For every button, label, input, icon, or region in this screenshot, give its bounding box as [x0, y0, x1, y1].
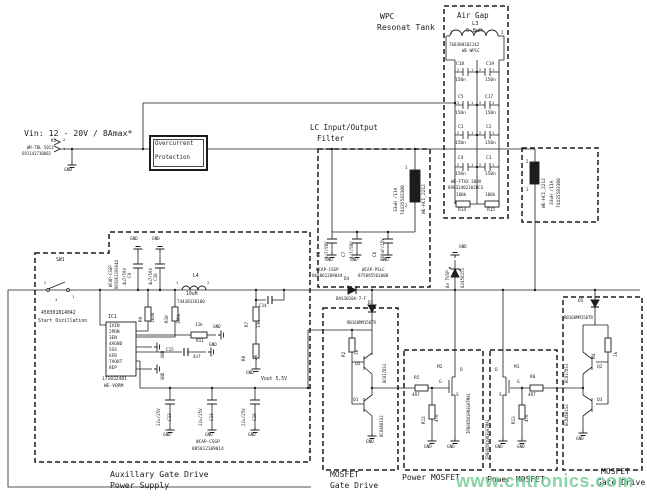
l4-pin: 2: [207, 281, 209, 285]
gnd-label: GND: [517, 446, 525, 450]
c13-value: 22u/25V: [199, 408, 203, 426]
aux-cap-series: WCAP-CSGP: [109, 265, 113, 287]
gnd-label: GND: [495, 446, 503, 450]
tvs-value: 8v TVSP: [446, 270, 450, 288]
q3-ref: Q3: [597, 399, 602, 404]
cap-pin: 2: [479, 163, 481, 167]
gnd-label: GND: [325, 259, 333, 263]
cap-pin: 2: [457, 131, 459, 135]
ind-pin: 2: [526, 160, 528, 164]
c18-value: 150n: [455, 79, 466, 84]
l1-series: WE-HCI_2212: [423, 184, 428, 214]
gnd-label: GND: [459, 246, 467, 250]
c16-value: 22u/25V: [242, 408, 246, 426]
k1-pin: 1: [63, 147, 65, 151]
c17-value: 150n: [485, 112, 496, 117]
c12-ref: C12: [169, 413, 173, 421]
cap-pin: 2: [457, 163, 459, 167]
gate-drive-left-box: [323, 308, 398, 470]
gnd-label: GND: [248, 434, 256, 438]
sw1-pin: 3: [55, 298, 57, 302]
d5-ref: D5: [578, 300, 583, 305]
c15-value: 4n7: [193, 355, 201, 359]
c3-value: 150n: [485, 173, 496, 178]
r9-ref: R9: [140, 317, 144, 322]
c2-ref: C2: [486, 126, 491, 131]
r11-ref: R11: [196, 340, 204, 344]
m2-source-label: S: [456, 394, 459, 399]
gate-drive-right-box: [563, 297, 642, 470]
power-left-title: Power MOSFET: [402, 474, 460, 482]
aux-cap-part: 865061209044: [115, 260, 119, 289]
l3-part: 760308102142: [449, 43, 479, 47]
r5-ref: R5: [414, 377, 419, 382]
r9-value: 183k: [152, 313, 156, 323]
ic1-pin-3: 3EN: [109, 337, 117, 341]
section-boxes: [35, 6, 642, 470]
cap-pin: 2: [479, 68, 481, 72]
c16-ref: C16: [254, 413, 258, 421]
l3-pin: 2: [501, 31, 503, 35]
q2-part: BC817DS1: [565, 364, 569, 383]
gnd-label: GND: [576, 438, 584, 442]
components: [47, 30, 611, 419]
tank-cap-series: WE-FTXX 300V: [451, 180, 481, 184]
ind-pin: 1: [526, 188, 528, 192]
l3-ref: L3: [472, 22, 479, 28]
q1-ref: Q1: [353, 399, 358, 404]
r14-value: 100k: [456, 194, 466, 198]
vout-label: Vout 5,5V: [261, 378, 287, 383]
gnd-label: GND: [152, 238, 160, 242]
r8-value: 3k: [255, 355, 259, 360]
l2-value: 33uH /11A: [551, 181, 556, 205]
sw1-note: Start Oszillation: [38, 320, 87, 325]
l4-value: 10uH: [186, 293, 198, 298]
l3-series: WE-WPCC: [462, 49, 480, 53]
junction-dots: [71, 71, 596, 389]
wires: [8, 36, 640, 487]
cap-pin: 2: [457, 68, 459, 72]
c2-value: 150n: [485, 142, 496, 147]
lc-filter-title-1: LC Input/Output: [310, 124, 378, 132]
c1-value: 150n: [455, 142, 466, 147]
cap-pin: 1: [471, 131, 473, 135]
r7-ref: R7: [246, 322, 250, 327]
gnd-label: GND: [381, 259, 389, 263]
ic1-pin-4: 4AGND: [109, 343, 122, 347]
l2-series: WE-HCI_2212: [543, 178, 548, 208]
gnd-label: GND: [447, 446, 455, 450]
cap-pin: 1: [492, 131, 494, 135]
c3-ref: C3: [486, 157, 491, 162]
r13-value: 47k: [526, 414, 530, 422]
r6-value: 4R7: [528, 394, 536, 398]
c14-ref: C14: [259, 305, 267, 309]
sw1-pin: 1: [72, 295, 74, 299]
c15-ref: C15: [166, 349, 174, 353]
m2-gate-label: G: [439, 381, 442, 386]
m1-ref: M1: [514, 366, 519, 371]
r5-value: 4R7: [412, 394, 420, 398]
vin-title: Vin: 12 - 20V / 8Amax*: [24, 129, 132, 137]
r4-ref: R4: [593, 354, 597, 359]
gnd-label: GND: [424, 446, 432, 450]
c9-value: 4u7/50V: [123, 268, 127, 285]
c10-value: 4u7/50V: [149, 268, 153, 285]
r13-ref: R13: [513, 416, 517, 424]
filter-cap-part: 865061209044: [312, 274, 342, 278]
m2-part: IPB065N10N3GATMA1: [467, 393, 471, 434]
l3-value: 5.8μH: [466, 29, 483, 35]
d4-part: BAS3010A-7-F: [336, 297, 366, 301]
c8-value: 4u7/50V: [325, 241, 329, 259]
ic1-series: WE-VDRM: [104, 385, 123, 390]
l2-part: 74435583300: [558, 178, 563, 208]
l4-coil: [182, 286, 206, 290]
gnd-label: GND: [213, 326, 221, 330]
l3-pin: 1: [450, 31, 452, 35]
cap-pin: 1: [471, 101, 473, 105]
c12-value: 22u/25V: [157, 408, 161, 426]
q2-ref: Q2: [597, 366, 602, 371]
filter-cap-series: WCAP-CSGP: [316, 268, 339, 272]
m2-drain-label: D: [460, 369, 463, 374]
q5-part: BC817DS1: [383, 364, 387, 383]
r8-ref: R8: [243, 356, 247, 361]
gnd-label: GND: [209, 344, 217, 348]
cap-pin: 2: [479, 101, 481, 105]
ic1-pin-1: 1VIN: [109, 325, 120, 329]
r7-value: 33k: [258, 320, 262, 328]
ic1-pin-2: 2PDN: [109, 331, 120, 335]
filter-cap-part: 875095561000: [358, 274, 388, 278]
l2-inductor-body: [530, 162, 539, 184]
air-gap-title: Air Gap: [457, 12, 489, 20]
gnd-label: GND: [130, 238, 138, 242]
gnd-label: GND: [366, 441, 374, 445]
cap-pin: 1: [492, 101, 494, 105]
diode-d5: [591, 300, 599, 307]
k1-part: 691141710002: [22, 152, 51, 156]
gnd-label: GND: [161, 351, 165, 358]
aux-cap-series: WCAP-CSGP: [196, 441, 220, 445]
r11-value: 11k: [195, 324, 203, 328]
k1-series: WR-TBL 5013: [27, 146, 54, 150]
d4-ref: D4: [344, 278, 349, 282]
m2-ref: M2: [437, 366, 442, 371]
r6-ref: R6: [530, 376, 535, 381]
q5-ref: Q5: [355, 363, 360, 368]
c4-value: 150n: [455, 173, 466, 178]
ground-symbols: [68, 162, 588, 444]
lc-filter-title-2: Filter: [317, 135, 344, 143]
r4-value: 1k: [615, 352, 619, 357]
resistor-bodies: [145, 201, 611, 419]
tank-cap-part: 890324023028CS: [448, 186, 483, 190]
l4-ref: L4: [193, 275, 199, 280]
power-mosfet-left-box: [404, 350, 483, 470]
l1-value: 33uH /11A: [395, 188, 400, 212]
cap-pin: 1: [471, 68, 473, 72]
c7-value: 4u7/50V: [350, 241, 354, 259]
junction-mark: +: [308, 450, 312, 456]
ic1-ref: IC1: [108, 316, 117, 321]
m1-source-label: S: [499, 394, 502, 399]
aux-supply-box: [35, 232, 310, 462]
r14-ref: R14: [458, 209, 466, 214]
overcurrent-title-2: Protection: [155, 156, 190, 162]
gnd-label: GND: [163, 434, 171, 438]
cap-pin: 1: [492, 163, 494, 167]
m1-part: IPB065N10N3GATMA1: [486, 419, 490, 460]
gnd-label: GND: [350, 259, 358, 263]
r10-value: 100k: [178, 314, 182, 324]
cap-pin: 1: [471, 163, 473, 167]
ind-pin: 1: [405, 166, 407, 170]
cap-pin: 1: [492, 68, 494, 72]
r15-value: 100k: [485, 194, 495, 198]
r15-ref: R15: [487, 209, 495, 214]
aux-cap-part: 885012109014: [192, 448, 224, 452]
wpc-tank-title-1: WPC: [380, 13, 394, 21]
gnd-label: GND: [64, 169, 72, 174]
k1-pin: 2: [63, 138, 65, 142]
r12-value: 47k: [436, 414, 440, 422]
d1-ref: D1: [368, 302, 373, 307]
overcurrent-title-1: Overcurrent: [155, 142, 193, 148]
cap-pin: 2: [457, 101, 459, 105]
m1-drain-label: D: [495, 369, 498, 374]
aux-section-title-1: Auxillary Gate Drive: [110, 470, 209, 478]
tvs-part: 82450151: [461, 268, 465, 288]
q3-part: BC846B1S2: [565, 404, 569, 426]
c7-ref: C7: [343, 252, 348, 257]
gate-left-title-2: Gate Drive: [330, 482, 378, 490]
d1-part: RB168MM150TR: [347, 321, 376, 325]
gnd-label: GND: [246, 372, 254, 376]
aux-section-title-2: Power Supply: [110, 481, 169, 489]
k1-ref: K1: [51, 140, 56, 144]
schematic-page: WPCResonat TankAir GapL35.8μH12760308102…: [0, 0, 647, 499]
ic1-pin-5: 5SS: [109, 349, 117, 353]
gnd-label: GND: [161, 373, 165, 380]
r2-ref: R2: [343, 352, 347, 357]
watermark: www.cntronics.com: [456, 471, 634, 492]
power-mosfet-right-box: [490, 350, 557, 470]
ic1-part: 171032401: [102, 378, 127, 383]
c13-ref: C13: [211, 413, 215, 421]
m1-gate-label: G: [517, 381, 520, 386]
l4-part: 74438336100: [177, 300, 205, 304]
c9-ref: C9: [129, 273, 133, 278]
c5-value: 150n: [455, 112, 466, 117]
c6-ref: C6: [374, 252, 379, 257]
wpc-tank-title-2: Resonat Tank: [377, 24, 435, 32]
sw1-ref: SW1: [56, 259, 65, 264]
l1-part: 74435583300: [402, 185, 407, 215]
ic1-pin-6: 6FB: [109, 355, 117, 359]
c19-value: 150n: [485, 79, 496, 84]
r12-ref: R12: [423, 416, 427, 424]
d5-part: RB168MM150TR: [564, 316, 593, 320]
r10-ref: R10: [166, 315, 170, 323]
ic1-pin-7: 7VOUT: [109, 361, 122, 365]
c4-ref: C4: [458, 157, 463, 162]
q1-part: BC846B1S2: [380, 415, 384, 437]
sw1-pin: 2: [44, 281, 46, 285]
l4-pin: 1: [176, 281, 178, 285]
gate-left-title-1: MOSFET: [330, 471, 359, 479]
r2-value: 1k: [356, 350, 360, 355]
ic1-pin-8: 8EP: [109, 367, 117, 371]
sw1-part: 450301014042: [41, 312, 76, 317]
gnd-label: GND: [205, 434, 213, 438]
l1-inductor-body: [410, 170, 420, 202]
c10-ref: C10: [155, 273, 159, 281]
filter-cap-series: WCAP-PSLC: [362, 268, 385, 272]
c8-ref: C8: [318, 252, 323, 257]
cap-pin: 2: [479, 131, 481, 135]
